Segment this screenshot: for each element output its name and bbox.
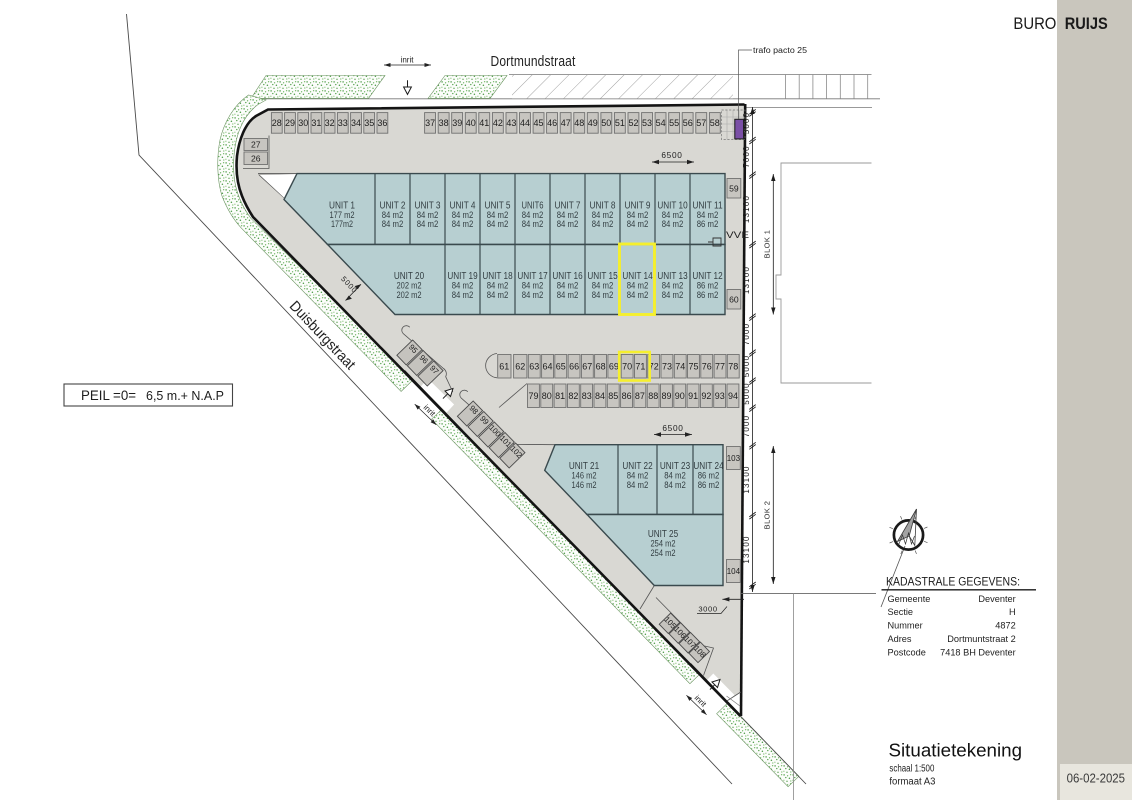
svg-text:Postcode: Postcode	[888, 647, 926, 657]
svg-text:84 m2: 84 m2	[627, 219, 649, 229]
svg-text:29: 29	[285, 118, 295, 128]
svg-text:28: 28	[272, 118, 282, 128]
svg-text:66: 66	[569, 362, 579, 372]
svg-text:84 m2: 84 m2	[382, 219, 404, 229]
svg-text:Sectie: Sectie	[888, 607, 914, 617]
svg-text:3000: 3000	[698, 605, 717, 614]
svg-text:5000: 5000	[742, 382, 751, 405]
svg-text:69: 69	[609, 362, 619, 372]
svg-text:56: 56	[683, 118, 693, 128]
svg-text:51: 51	[615, 118, 625, 128]
svg-text:89: 89	[661, 391, 671, 401]
svg-text:5000: 5000	[742, 355, 751, 378]
svg-text:13100: 13100	[742, 535, 751, 563]
svg-text:104: 104	[727, 567, 741, 576]
svg-text:13100: 13100	[742, 266, 751, 294]
svg-text:VVE: VVE	[726, 230, 749, 241]
svg-text:83: 83	[582, 391, 592, 401]
svg-text:48: 48	[574, 118, 584, 128]
svg-text:53: 53	[642, 118, 652, 128]
svg-text:63: 63	[529, 362, 539, 372]
svg-text:79: 79	[528, 391, 538, 401]
svg-text:86 m2: 86 m2	[697, 219, 719, 229]
svg-text:70: 70	[622, 362, 632, 372]
svg-text:61: 61	[499, 362, 509, 372]
svg-text:59: 59	[729, 183, 739, 193]
svg-text:80: 80	[542, 391, 552, 401]
svg-text:37: 37	[425, 118, 435, 128]
svg-text:32: 32	[325, 118, 335, 128]
svg-text:62: 62	[515, 362, 525, 372]
svg-text:PEIL =0=: PEIL =0=	[81, 387, 136, 403]
svg-text:84: 84	[595, 391, 605, 401]
svg-text:34: 34	[351, 118, 361, 128]
svg-text:60: 60	[729, 294, 739, 304]
svg-text:87: 87	[635, 391, 645, 401]
svg-text:73: 73	[662, 362, 672, 372]
svg-text:85: 85	[608, 391, 618, 401]
svg-text:103: 103	[727, 454, 741, 463]
svg-text:93: 93	[715, 391, 725, 401]
svg-text:44: 44	[520, 118, 530, 128]
svg-text:13100: 13100	[742, 195, 751, 223]
svg-text:84 m2: 84 m2	[557, 219, 579, 229]
svg-text:26: 26	[251, 153, 261, 163]
svg-text:43: 43	[506, 118, 516, 128]
svg-text:47: 47	[561, 118, 571, 128]
svg-text:Situatietekening: Situatietekening	[889, 741, 1023, 761]
svg-text:84 m2: 84 m2	[452, 290, 474, 300]
svg-text:45: 45	[533, 118, 543, 128]
svg-text:84 m2: 84 m2	[627, 480, 649, 490]
svg-text:Adres: Adres	[888, 634, 912, 644]
svg-text:71: 71	[635, 362, 645, 372]
svg-text:schaal 1:500: schaal 1:500	[889, 764, 934, 775]
svg-text:78: 78	[728, 362, 738, 372]
svg-text:33: 33	[338, 118, 348, 128]
svg-text:5000: 5000	[742, 112, 751, 135]
svg-text:31: 31	[311, 118, 321, 128]
svg-text:7000: 7000	[742, 145, 751, 168]
svg-text:84 m2: 84 m2	[417, 219, 439, 229]
svg-text:27: 27	[251, 140, 261, 150]
svg-text:202 m2: 202 m2	[397, 290, 422, 300]
svg-text:6500: 6500	[661, 150, 682, 160]
svg-text:67: 67	[582, 362, 592, 372]
svg-text:84 m2: 84 m2	[592, 290, 614, 300]
svg-text:4872: 4872	[995, 621, 1015, 631]
svg-text:41: 41	[479, 118, 489, 128]
svg-text:64: 64	[542, 362, 552, 372]
svg-text:trafo pacto 25: trafo pacto 25	[753, 46, 808, 55]
svg-text:177m2: 177m2	[331, 219, 353, 229]
svg-text:254 m2: 254 m2	[651, 548, 676, 558]
svg-text:84 m2: 84 m2	[557, 290, 579, 300]
svg-text:7000: 7000	[742, 415, 751, 438]
svg-text:BLOK 1: BLOK 1	[763, 230, 772, 259]
svg-text:58: 58	[710, 118, 720, 128]
svg-text:Nummer: Nummer	[888, 621, 923, 631]
svg-text:42: 42	[493, 118, 503, 128]
svg-text:68: 68	[596, 362, 606, 372]
svg-text:84 m2: 84 m2	[522, 290, 544, 300]
svg-text:84 m2: 84 m2	[627, 290, 649, 300]
svg-text:Deventer: Deventer	[978, 594, 1015, 604]
svg-text:6,5 m.+ N.A.P: 6,5 m.+ N.A.P	[146, 389, 224, 403]
svg-text:52: 52	[628, 118, 638, 128]
svg-text:H: H	[1009, 607, 1016, 617]
svg-text:92: 92	[701, 391, 711, 401]
svg-text:7000: 7000	[742, 323, 751, 346]
svg-text:77: 77	[715, 362, 725, 372]
svg-text:39: 39	[452, 118, 462, 128]
svg-text:38: 38	[439, 118, 449, 128]
svg-text:06-02-2025: 06-02-2025	[1067, 771, 1125, 786]
svg-text:91: 91	[688, 391, 698, 401]
svg-text:94: 94	[728, 391, 738, 401]
svg-text:BLOK 2: BLOK 2	[763, 501, 772, 530]
svg-text:formaat A3: formaat A3	[889, 777, 935, 788]
svg-text:75: 75	[688, 362, 698, 372]
svg-text:50: 50	[601, 118, 611, 128]
svg-text:Dortmuntstraat 2: Dortmuntstraat 2	[947, 634, 1015, 644]
svg-text:86: 86	[622, 391, 632, 401]
svg-text:84 m2: 84 m2	[487, 219, 509, 229]
svg-text:Dortmundstraat: Dortmundstraat	[491, 54, 576, 70]
svg-text:RUIJS: RUIJS	[1065, 15, 1108, 33]
svg-text:BURO: BURO	[1013, 15, 1056, 33]
svg-text:90: 90	[675, 391, 685, 401]
svg-text:84 m2: 84 m2	[662, 290, 684, 300]
svg-text:65: 65	[556, 362, 566, 372]
svg-text:7418 BH Deventer: 7418 BH Deventer	[940, 647, 1016, 657]
svg-text:KADASTRALE GEGEVENS:: KADASTRALE GEGEVENS:	[886, 577, 1020, 589]
svg-text:76: 76	[702, 362, 712, 372]
svg-text:84 m2: 84 m2	[522, 219, 544, 229]
svg-text:40: 40	[466, 118, 476, 128]
svg-text:86 m2: 86 m2	[698, 480, 720, 490]
svg-text:46: 46	[547, 118, 557, 128]
svg-text:84 m2: 84 m2	[662, 219, 684, 229]
svg-text:13100: 13100	[742, 465, 751, 493]
svg-text:57: 57	[696, 118, 706, 128]
svg-text:55: 55	[669, 118, 679, 128]
svg-text:54: 54	[656, 118, 666, 128]
svg-text:30: 30	[298, 118, 308, 128]
svg-text:88: 88	[648, 391, 658, 401]
svg-text:inrit: inrit	[401, 56, 415, 65]
svg-text:Gemeente: Gemeente	[888, 594, 931, 604]
svg-text:6500: 6500	[662, 423, 683, 433]
svg-text:86 m2: 86 m2	[697, 290, 719, 300]
svg-text:146 m2: 146 m2	[572, 480, 597, 490]
svg-text:84 m2: 84 m2	[452, 219, 474, 229]
svg-text:84 m2: 84 m2	[487, 290, 509, 300]
svg-text:84 m2: 84 m2	[592, 219, 614, 229]
svg-text:82: 82	[568, 391, 578, 401]
svg-text:74: 74	[675, 362, 685, 372]
svg-text:84 m2: 84 m2	[664, 480, 686, 490]
svg-text:81: 81	[555, 391, 565, 401]
svg-text:49: 49	[588, 118, 598, 128]
svg-text:36: 36	[377, 118, 387, 128]
svg-text:35: 35	[364, 118, 374, 128]
